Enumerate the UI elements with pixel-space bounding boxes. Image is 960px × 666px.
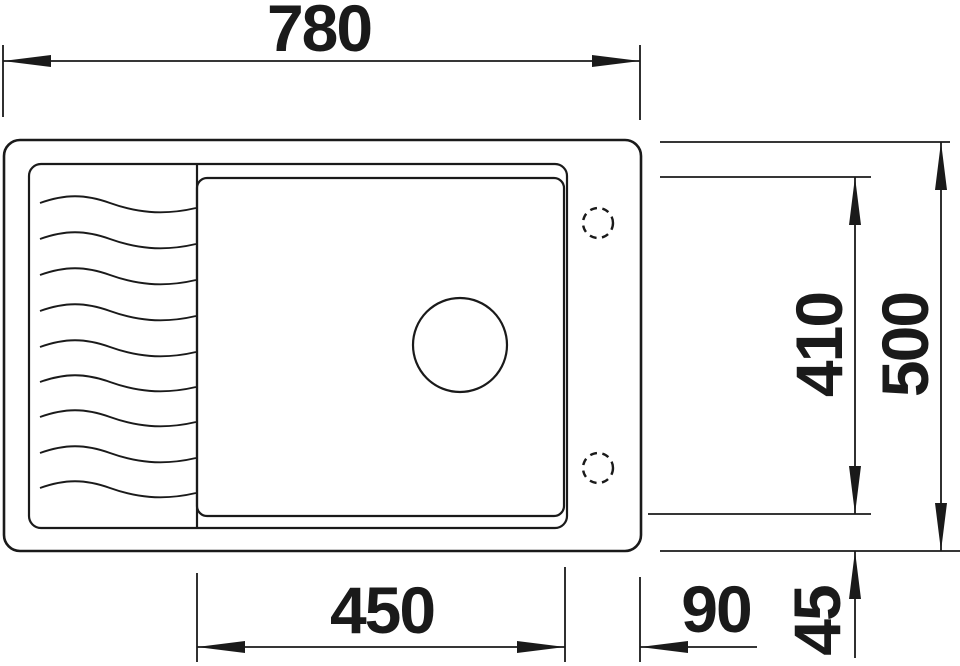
arrow-down-icon (935, 503, 947, 551)
arrow-up-icon (935, 142, 947, 190)
arrow-down-icon (849, 466, 861, 514)
sink-body (4, 140, 641, 551)
dimension-overall-width: 780 (3, 0, 640, 120)
dimension-label-overall-width: 780 (267, 0, 371, 65)
dimension-label-bowl-width: 450 (330, 573, 434, 647)
sink-dimension-drawing: 780 500 410 45 (0, 0, 960, 666)
arrow-left-icon (197, 641, 245, 653)
technical-drawing-canvas: 780 500 410 45 (0, 0, 960, 666)
sink-outer-outline (4, 140, 641, 551)
dimension-right-ledge: 90 (640, 572, 757, 662)
tap-hole-top-circle (583, 208, 613, 238)
dimension-bowl-width: 450 (197, 567, 565, 662)
dimension-label-bottom-inset: 45 (780, 586, 854, 656)
dimension-label-bowl-depth: 410 (782, 293, 856, 397)
arrow-right-icon (517, 641, 565, 653)
dimension-bottom-inset: 45 (780, 551, 861, 658)
arrow-right-icon (592, 55, 640, 67)
drainer-wave-lines (40, 196, 196, 497)
tap-hole-bottom-circle (583, 453, 613, 483)
bowl-outline (197, 178, 564, 516)
dimension-bowl-depth: 410 (648, 177, 871, 514)
arrow-left-icon (3, 55, 51, 67)
dimension-label-overall-depth: 500 (868, 293, 942, 397)
drain-hole-circle (413, 298, 507, 392)
dimension-label-right-ledge: 90 (681, 572, 750, 646)
arrow-up-icon (849, 177, 861, 225)
